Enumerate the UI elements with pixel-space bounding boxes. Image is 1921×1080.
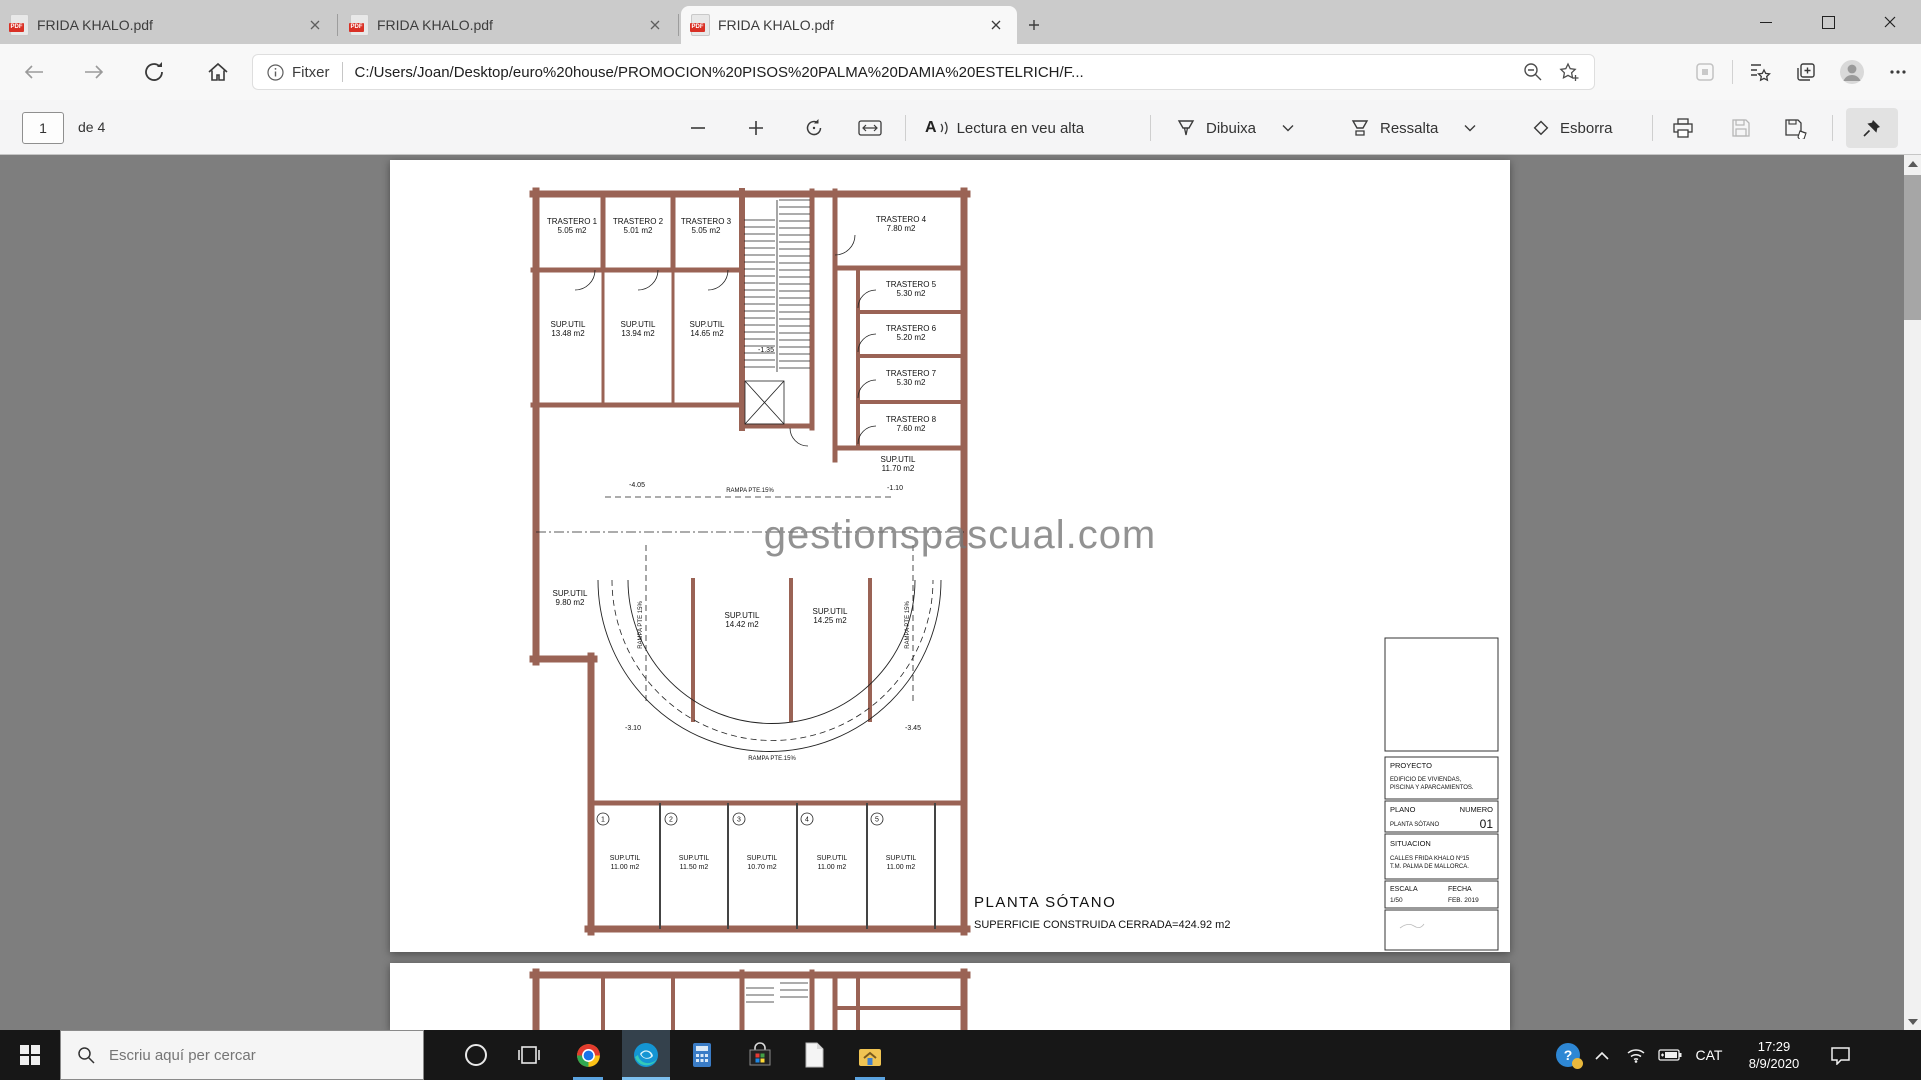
parking-area: 10.70 m2: [747, 864, 776, 871]
eraser-icon: [1532, 119, 1550, 137]
save-as-button[interactable]: [1784, 113, 1808, 143]
scrollbar-thumb[interactable]: [1904, 175, 1921, 320]
highlight-label: Ressalta: [1380, 120, 1438, 137]
vertical-scrollbar[interactable]: [1904, 155, 1921, 1030]
room-area: 5.01 m2: [624, 226, 653, 235]
window-controls: [1735, 0, 1921, 44]
print-icon: [1672, 117, 1694, 139]
pdf-toolbar: 1 de 4 A Lectura en veu alta: [0, 100, 1921, 155]
floor-plan-2-partial: [390, 963, 1510, 1030]
save-icon: [1730, 117, 1752, 139]
save-button[interactable]: [1730, 113, 1752, 143]
back-icon: [23, 64, 45, 80]
chrome-icon: [575, 1042, 602, 1069]
room-area: 5.30 m2: [897, 378, 926, 387]
arrow-down-icon: [1908, 1019, 1918, 1025]
room-area: 14.25 m2: [813, 616, 847, 625]
extension-button[interactable]: [1688, 55, 1722, 89]
parking-area: 11.00 m2: [887, 864, 916, 871]
room-label: TRASTERO 7: [886, 369, 937, 378]
draw-label: Dibuixa: [1206, 120, 1256, 137]
pin-toolbar-toggle[interactable]: [1846, 108, 1898, 148]
new-tab-button[interactable]: [1020, 11, 1048, 39]
parking-number: 5: [875, 817, 879, 824]
edge-icon: [632, 1041, 660, 1069]
search-icon: [77, 1046, 95, 1064]
scroll-up-button[interactable]: [1904, 155, 1921, 172]
room-label: TRASTERO 3: [681, 217, 732, 226]
tab-close-icon[interactable]: [304, 14, 326, 36]
room-label: SUP.UTIL: [813, 607, 849, 616]
titleblock-situacion-line2: T.M. PALMA DE MALLORCA.: [1390, 864, 1469, 870]
taskbar-app-calculator[interactable]: [678, 1030, 726, 1080]
parking-label: SUP.UTIL: [747, 855, 778, 862]
room-area: 14.65 m2: [690, 329, 724, 338]
pdf-page-2: [390, 963, 1510, 1030]
pen-icon: [1176, 118, 1196, 138]
titleblock-numero-value: 01: [1480, 817, 1494, 831]
titleblock-proyecto-line2: PISCINA Y APARCAMIENTOS.: [1390, 785, 1474, 791]
tab-title: FRIDA KHALO.pdf: [718, 17, 985, 33]
titleblock-proyecto-label: PROYECTO: [1390, 761, 1432, 770]
tab-2[interactable]: PDF FRIDA KHALO.pdf: [340, 6, 676, 44]
pdf-file-icon: PDF: [350, 14, 369, 36]
clock[interactable]: 17:29 8/9/2020: [1731, 1038, 1817, 1072]
page-number-input[interactable]: 1: [22, 112, 64, 144]
store-icon: [747, 1042, 773, 1068]
room-area: 5.05 m2: [692, 226, 721, 235]
watermark: gestionspascual.com: [764, 513, 1157, 557]
profile-avatar-icon: [1839, 59, 1865, 85]
scroll-down-button[interactable]: [1904, 1013, 1921, 1030]
document-icon: [803, 1042, 825, 1068]
titleblock-fecha-label: FECHA: [1448, 886, 1472, 893]
level-marker: -4.05: [629, 482, 645, 489]
zoom-out-icon[interactable]: [1523, 62, 1543, 82]
divider: [1652, 115, 1653, 141]
tray-expand-button[interactable]: [1585, 1030, 1619, 1080]
save-as-icon: [1784, 117, 1808, 139]
task-view-button[interactable]: [505, 1030, 553, 1080]
tab-separator: [337, 14, 338, 36]
plan-title: PLANTA SÓTANO: [974, 894, 1116, 911]
rotate-icon: [804, 118, 824, 138]
url-field[interactable]: Fitxer C:/Users/Joan/Desktop/euro%20hous…: [252, 54, 1595, 90]
taskbar-app-notepad[interactable]: [790, 1030, 838, 1080]
home-icon: [207, 62, 229, 82]
action-center-icon: [1830, 1046, 1851, 1065]
reload-icon: [142, 60, 166, 84]
titleblock-plano-label: PLANO: [1390, 805, 1416, 814]
parking-number: 3: [737, 817, 741, 824]
room-label: TRASTERO 4: [876, 215, 927, 224]
profile-button[interactable]: [1835, 55, 1869, 89]
erase-label: Esborra: [1560, 120, 1613, 137]
taskbar-app-home-design[interactable]: [846, 1030, 894, 1080]
tab-separator: [678, 14, 679, 36]
pdf-viewport[interactable]: TRASTERO 1 5.05 m2 TRASTERO 2 5.01 m2 TR…: [0, 155, 1921, 1030]
room-label: SUP.UTIL: [690, 320, 726, 329]
windows-logo-icon: [20, 1045, 40, 1065]
room-area: 14.42 m2: [725, 620, 759, 629]
address-bar: Fitxer C:/Users/Joan/Desktop/euro%20hous…: [0, 44, 1921, 100]
extension-icon: [1695, 62, 1715, 82]
address-bar-actions: [1682, 44, 1921, 100]
minus-icon: [690, 120, 706, 136]
screen: PDF FRIDA KHALO.pdf PDF FRIDA KHALO.pdf …: [0, 0, 1921, 1080]
pdf-file-icon: PDF: [691, 14, 710, 36]
add-favorite-icon[interactable]: [1559, 62, 1580, 82]
chevron-down-icon: [1464, 124, 1476, 132]
house-app-icon: [857, 1043, 883, 1067]
task-view-icon: [517, 1044, 541, 1066]
arrow-up-icon: [1908, 161, 1918, 167]
room-label: SUP.UTIL: [621, 320, 657, 329]
notification-badge: [1572, 1058, 1583, 1069]
collections-button[interactable]: [1789, 55, 1823, 89]
plus-icon: [748, 120, 764, 136]
time: 17:29: [1731, 1038, 1817, 1055]
chevron-up-icon: [1595, 1051, 1609, 1060]
fit-width-icon: [858, 120, 882, 136]
divider: [1732, 60, 1733, 84]
room-label: SUP.UTIL: [553, 589, 589, 598]
cortana-icon: [464, 1043, 488, 1067]
ellipsis-icon: [1889, 69, 1907, 75]
wifi-icon: [1626, 1047, 1646, 1063]
help-tray-button[interactable]: ?: [1551, 1030, 1585, 1080]
room-label: TRASTERO 6: [886, 324, 937, 333]
collections-icon: [1796, 62, 1816, 82]
room-area: 5.05 m2: [558, 226, 587, 235]
taskbar-app-store[interactable]: [736, 1030, 784, 1080]
taskbar: ? CAT: [0, 1030, 1921, 1080]
plan-subtitle: SUPERFICIE CONSTRUIDA CERRADA=424.92 m2: [974, 919, 1230, 931]
parking-number: 4: [805, 817, 809, 824]
reload-button[interactable]: [140, 58, 168, 86]
pdf-page-1: TRASTERO 1 5.05 m2 TRASTERO 2 5.01 m2 TR…: [390, 160, 1510, 952]
level-marker: -1.35: [758, 347, 774, 354]
tab-title: FRIDA KHALO.pdf: [37, 17, 304, 33]
fit-to-width-button[interactable]: [858, 113, 882, 143]
room-label: TRASTERO 8: [886, 415, 937, 424]
parking-label: SUP.UTIL: [610, 855, 641, 862]
taskbar-search[interactable]: [60, 1030, 424, 1080]
minimize-icon: [1760, 22, 1772, 23]
file-scheme-label: Fitxer: [292, 64, 330, 81]
url-text: C:/Users/Joan/Desktop/euro%20house/PROMO…: [355, 64, 1084, 81]
titleblock-numero-label: NUMERO: [1460, 805, 1493, 814]
back-button[interactable]: [20, 58, 48, 86]
ramp-label: RAMPA PTE 15%: [905, 601, 911, 649]
favorites-button[interactable]: [1743, 55, 1777, 89]
room-area: 13.48 m2: [551, 329, 585, 338]
parking-label: SUP.UTIL: [886, 855, 917, 862]
forward-button[interactable]: [80, 58, 108, 86]
system-tray: ? CAT: [1551, 1030, 1921, 1080]
rotate-button[interactable]: [804, 113, 824, 143]
pin-icon: [1862, 118, 1882, 138]
tab-1[interactable]: PDF FRIDA KHALO.pdf: [0, 6, 336, 44]
maximize-icon: [1822, 16, 1835, 29]
titleblock-proyecto-line1: EDIFICIO DE VIVIENDAS,: [1390, 777, 1462, 783]
zoom-out-button[interactable]: [690, 113, 706, 143]
read-aloud-button[interactable]: A Lectura en veu alta: [925, 113, 1084, 143]
level-marker: -3.45: [905, 725, 921, 732]
calculator-icon: [690, 1042, 714, 1068]
level-marker: -1.10: [887, 485, 903, 492]
pdf-file-icon: PDF: [10, 14, 29, 36]
titleblock-escala-label: ESCALA: [1390, 886, 1418, 893]
titleblock-situacion-label: SITUACION: [1390, 839, 1431, 848]
close-button[interactable]: [1859, 0, 1921, 44]
room-area: 7.60 m2: [897, 424, 926, 433]
parking-label: SUP.UTIL: [679, 855, 710, 862]
erase-button[interactable]: Esborra: [1532, 113, 1613, 143]
floor-plan-drawing: TRASTERO 1 5.05 m2 TRASTERO 2 5.01 m2 TR…: [390, 160, 1510, 952]
room-label: SUP.UTIL: [551, 320, 587, 329]
parking-number: 2: [669, 817, 673, 824]
close-icon: [1884, 16, 1896, 28]
page-count-label: de 4: [78, 100, 105, 155]
settings-menu-button[interactable]: [1881, 55, 1915, 89]
divider: [1832, 115, 1833, 141]
divider: [342, 62, 343, 82]
print-button[interactable]: [1672, 113, 1694, 143]
parking-label: SUP.UTIL: [817, 855, 848, 862]
tab-bar: PDF FRIDA KHALO.pdf PDF FRIDA KHALO.pdf …: [0, 0, 1921, 44]
room-area: 9.80 m2: [556, 598, 585, 607]
sound-waves-icon: [939, 120, 949, 136]
parking-area: 11.00 m2: [818, 864, 847, 871]
tab-close-icon[interactable]: [985, 14, 1007, 36]
titleblock-escala-value: 1/50: [1390, 897, 1403, 904]
cortana-button[interactable]: [452, 1030, 500, 1080]
room-label: SUP.UTIL: [725, 611, 761, 620]
level-marker: -3.10: [625, 725, 641, 732]
forward-icon: [83, 64, 105, 80]
wifi-button[interactable]: [1619, 1030, 1653, 1080]
room-label: TRASTERO 5: [886, 280, 937, 289]
ramp-label: RAMPA PTE.15%: [748, 756, 796, 762]
minimize-button[interactable]: [1735, 0, 1797, 44]
date: 8/9/2020: [1731, 1055, 1817, 1072]
room-area: 7.80 m2: [887, 224, 916, 233]
parking-area: 11.50 m2: [680, 864, 709, 871]
taskbar-app-edge-active[interactable]: [622, 1030, 670, 1080]
signature-scribble: [1400, 924, 1424, 928]
titleblock-fecha-value: FEB. 2019: [1448, 897, 1479, 904]
help-icon: ?: [1556, 1043, 1580, 1067]
highlighter-icon: [1350, 118, 1370, 138]
parking-area: 11.00 m2: [611, 864, 640, 871]
start-button[interactable]: [0, 1030, 60, 1080]
ramp-label: RAMPA PTE 15%: [638, 601, 644, 649]
action-center-button[interactable]: [1817, 1030, 1863, 1080]
divider: [1150, 115, 1151, 141]
info-icon: [267, 64, 284, 81]
battery-charging-icon: [1658, 1048, 1682, 1062]
titleblock-situacion-line1: CALLES FRIDA KHALO Nº15: [1390, 855, 1470, 862]
ramp-label: RAMPA PTE.15%: [726, 488, 774, 494]
room-area: 11.70 m2: [882, 464, 915, 473]
search-input[interactable]: [107, 1046, 391, 1065]
read-aloud-icon: A: [925, 119, 937, 137]
battery-button[interactable]: [1653, 1030, 1687, 1080]
titleblock-plano-value: PLANTA SÓTANO: [1390, 821, 1439, 828]
chevron-down-icon: [1282, 124, 1294, 132]
tab-3-active[interactable]: PDF FRIDA KHALO.pdf: [681, 6, 1017, 44]
tab-close-icon[interactable]: [644, 14, 666, 36]
tab-title: FRIDA KHALO.pdf: [377, 17, 644, 33]
zoom-in-button[interactable]: [748, 113, 764, 143]
home-button[interactable]: [204, 58, 232, 86]
divider: [905, 115, 906, 141]
room-area: 5.20 m2: [897, 333, 926, 342]
taskbar-app-chrome[interactable]: [564, 1030, 612, 1080]
read-aloud-label: Lectura en veu alta: [957, 120, 1085, 137]
favorites-icon: [1749, 62, 1771, 82]
highlight-button[interactable]: Ressalta: [1350, 113, 1476, 143]
parking-number: 1: [601, 817, 605, 824]
draw-button[interactable]: Dibuixa: [1176, 113, 1294, 143]
room-label: TRASTERO 1: [547, 217, 598, 226]
room-area: 13.94 m2: [621, 329, 655, 338]
language-indicator[interactable]: CAT: [1687, 1047, 1731, 1063]
room-label: SUP.UTIL: [881, 455, 917, 464]
room-label: TRASTERO 2: [613, 217, 664, 226]
maximize-button[interactable]: [1797, 0, 1859, 44]
room-area: 5.30 m2: [897, 289, 926, 298]
